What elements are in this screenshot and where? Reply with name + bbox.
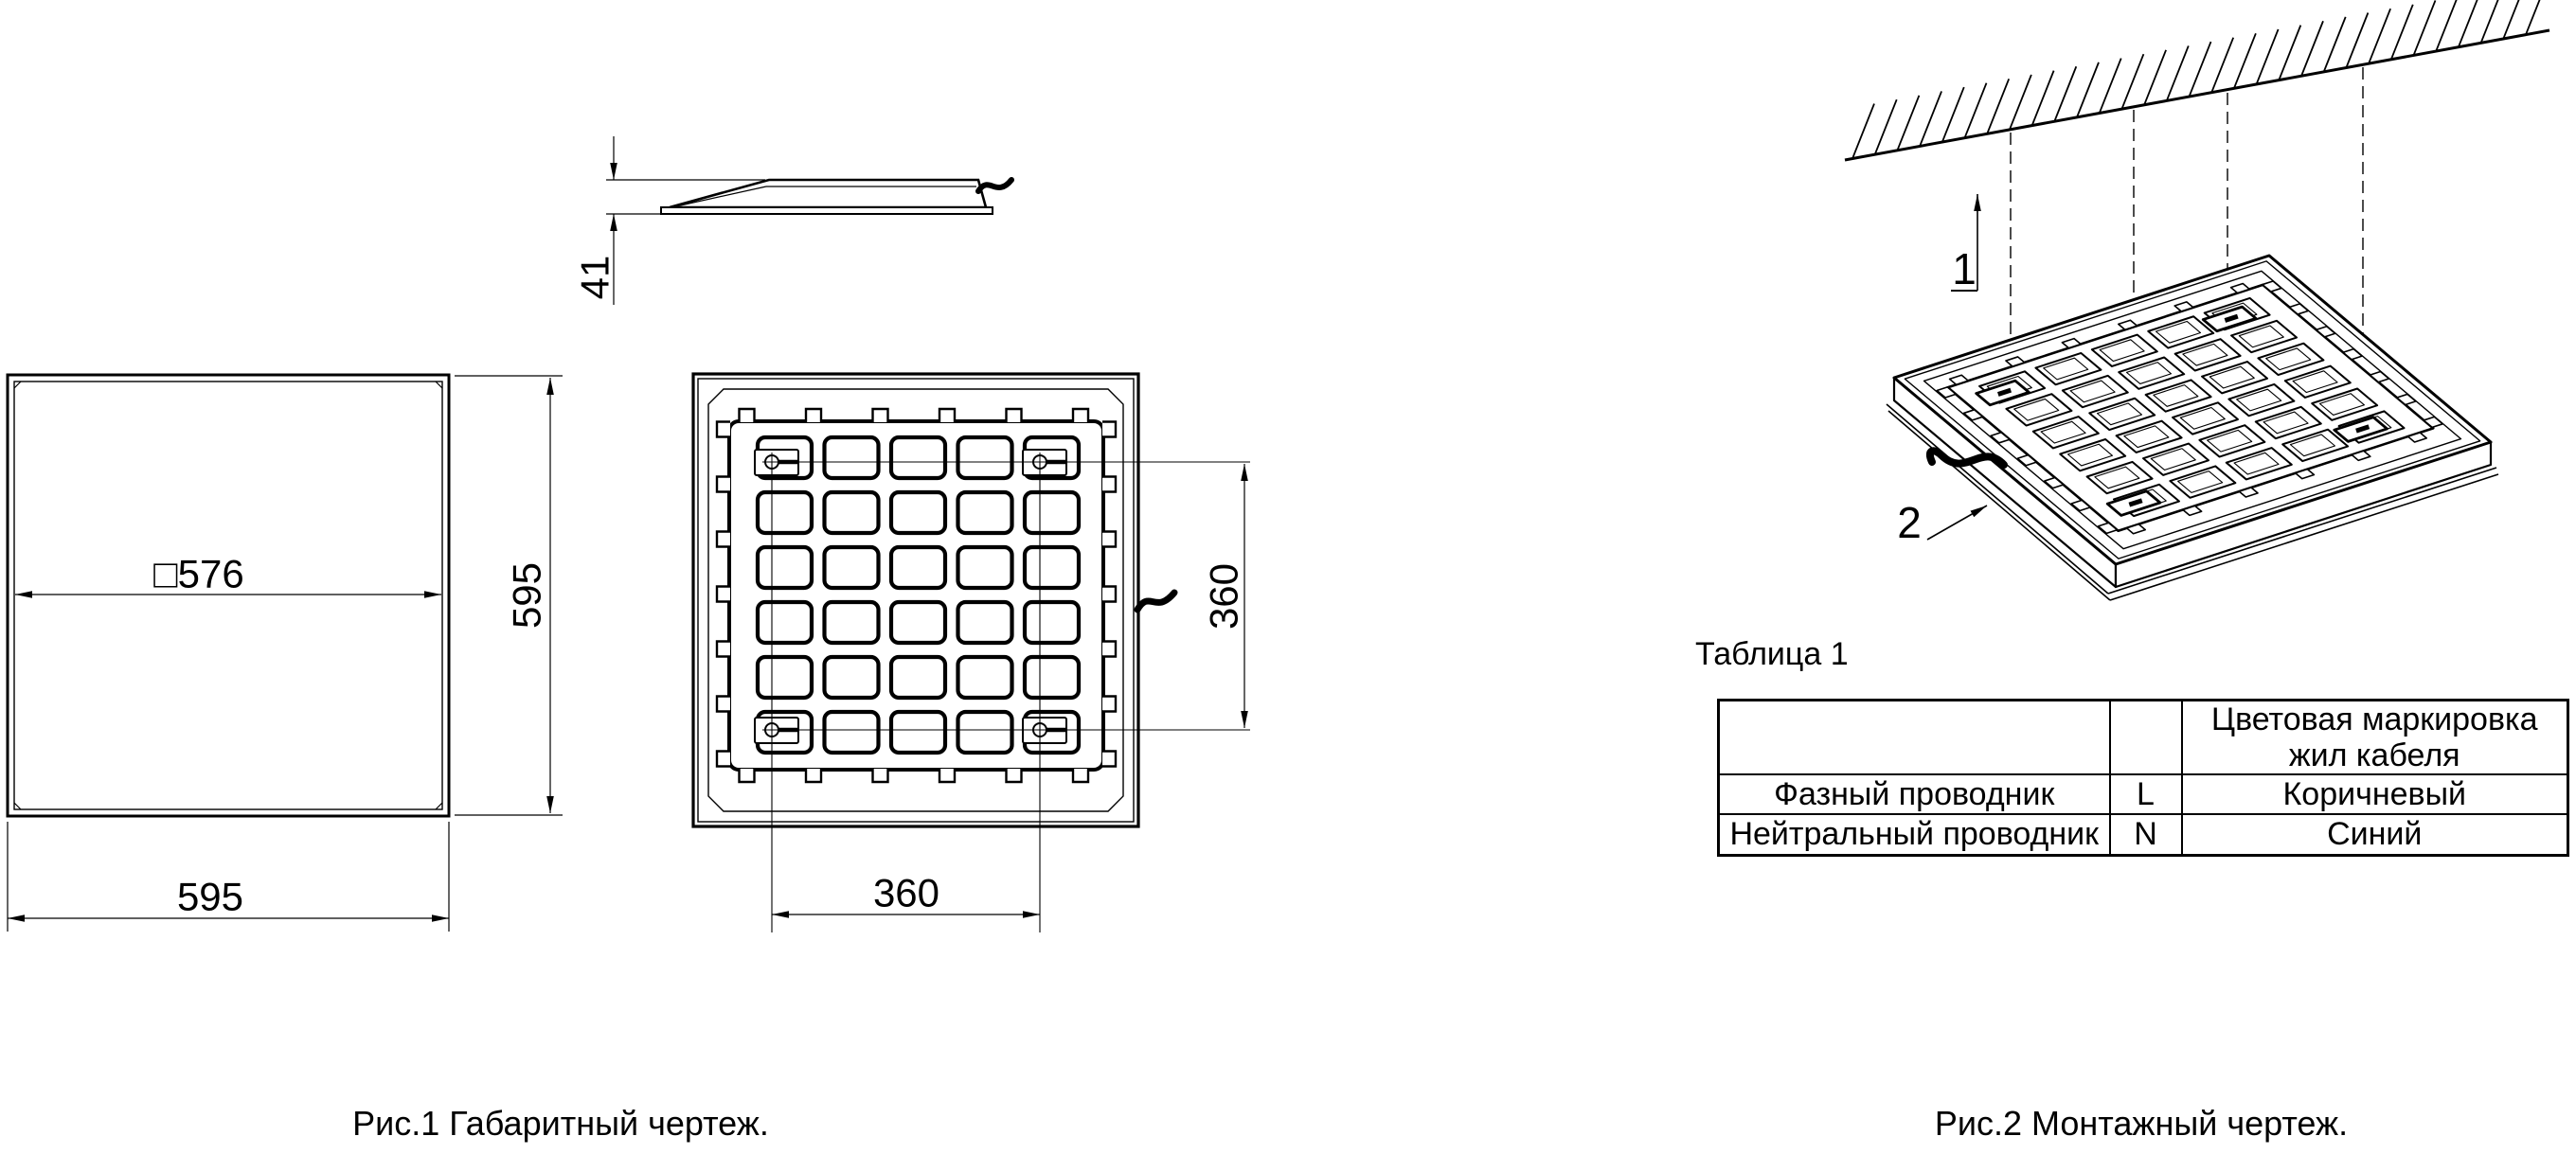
header-color-cell: Цветовая маркировка жил кабеля bbox=[2182, 701, 2568, 775]
wiring-table: Цветовая маркировка жил кабеля Фазный пр… bbox=[1717, 699, 2569, 857]
dimension-inner-width: □576 bbox=[153, 552, 243, 596]
dimension-mount-horizontal: 360 bbox=[873, 871, 939, 915]
wire-color-cell: Коричневый bbox=[2182, 774, 2568, 814]
profile-view-drawing: 41 bbox=[573, 136, 1012, 305]
drawing-sheet: □576 595 595 41 360 bbox=[0, 0, 2576, 1154]
ceiling-hatching bbox=[1852, 0, 2548, 159]
wire-name-cell: Фазный проводник bbox=[1719, 774, 2110, 814]
table-row: Нейтральный проводник N Синий bbox=[1719, 814, 2568, 855]
wire-name-cell: Нейтральный проводник bbox=[1719, 814, 2110, 855]
wiring-table-grid: Цветовая маркировка жил кабеля Фазный пр… bbox=[1717, 699, 2569, 857]
header-terminal-cell bbox=[2110, 701, 2182, 775]
terminal-cell: L bbox=[2110, 774, 2182, 814]
technical-drawing-canvas: □576 595 595 41 360 bbox=[0, 0, 2576, 1154]
diffuser-grid bbox=[717, 409, 1116, 782]
callout-2-leader bbox=[1927, 506, 1987, 540]
dimension-height: 595 bbox=[505, 562, 549, 629]
header-color-line1: Цветовая маркировка bbox=[2189, 701, 2562, 737]
dimension-thickness: 41 bbox=[573, 256, 617, 300]
header-wire-cell bbox=[1719, 701, 2110, 775]
back-cable bbox=[1137, 593, 1174, 610]
table-row: Фазный проводник L Коричневый bbox=[1719, 774, 2568, 814]
table-title: Таблица 1 bbox=[1695, 636, 1849, 673]
front-view-drawing: □576 595 595 bbox=[8, 375, 563, 932]
figure2-caption: Рис.2 Монтажный чертеж. bbox=[1810, 1104, 2473, 1144]
profile-flange bbox=[661, 207, 993, 214]
callout-1-label: 1 bbox=[1952, 244, 1977, 293]
header-color-line2: жил кабеля bbox=[2189, 737, 2562, 773]
callout-2-label: 2 bbox=[1897, 498, 1922, 547]
dimension-mount-vertical: 360 bbox=[1202, 563, 1246, 630]
back-view-drawing: 360 360 bbox=[693, 374, 1250, 932]
profile-cable bbox=[978, 180, 1011, 191]
figure1-caption: Рис.1 Габаритный чертеж. bbox=[229, 1104, 892, 1144]
mounting-view-drawing: 1 2 bbox=[1845, 0, 2549, 600]
panel-isometric bbox=[1887, 256, 2498, 600]
dimension-width: 595 bbox=[177, 875, 243, 919]
ceiling-line bbox=[1845, 30, 2549, 160]
profile-body bbox=[670, 180, 986, 207]
wire-color-cell: Синий bbox=[2182, 814, 2568, 855]
profile-dimensions bbox=[606, 136, 765, 305]
terminal-cell: N bbox=[2110, 814, 2182, 855]
